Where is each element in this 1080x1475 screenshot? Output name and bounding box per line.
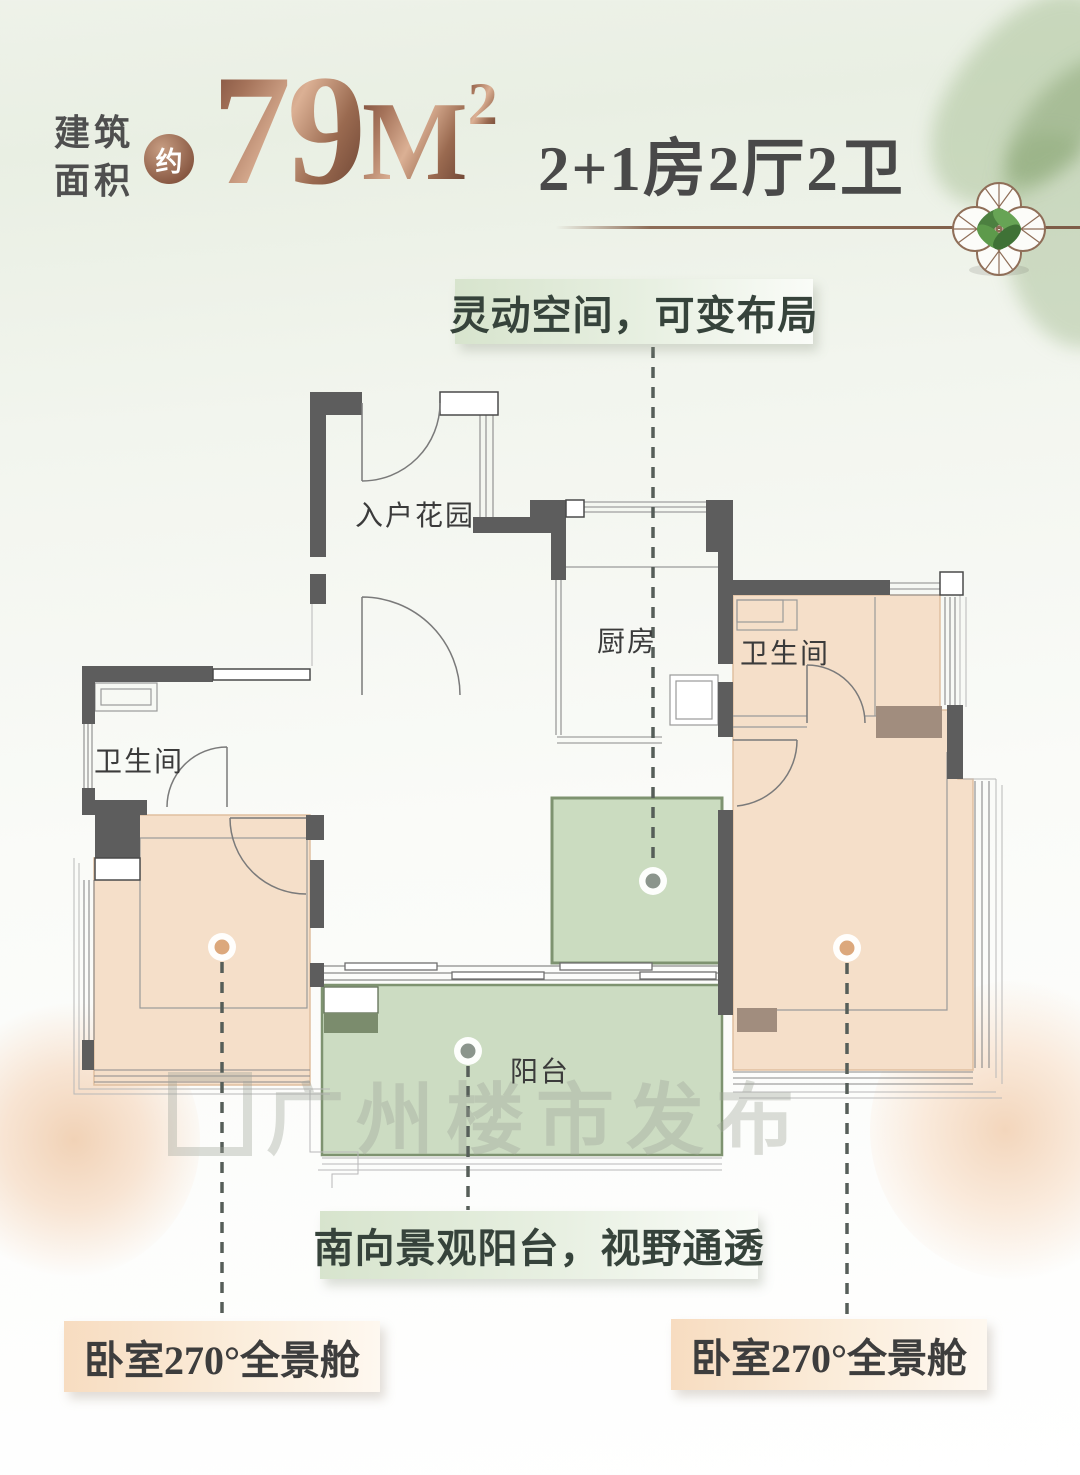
room-label-entry-garden: 入户花园	[355, 494, 475, 534]
area-label-line2: 面积	[54, 158, 134, 206]
room-label-kitchen: 厨房	[597, 620, 657, 660]
room-label-bath-left: 卫生间	[94, 740, 184, 780]
layout-description: 2+1房2厅2卫	[538, 118, 905, 209]
callout-balcony-view: 南向景观阳台，视野通透	[320, 1211, 758, 1279]
room-label-balcony: 阳台	[510, 1050, 570, 1090]
room-label-bath-right: 卫生间	[740, 632, 830, 672]
approx-badge: 约	[144, 134, 194, 184]
watermark-logo	[168, 1072, 252, 1156]
flower-ornament	[944, 174, 1054, 284]
area-unit: M	[362, 86, 466, 198]
area-number: 79	[212, 52, 362, 210]
area-label-line1: 建筑	[54, 110, 134, 158]
flex-room-fill	[552, 798, 722, 963]
area-label: 建筑 面积	[54, 110, 134, 205]
callout-flex-space: 灵动空间，可变布局	[455, 279, 813, 344]
sliding-door	[322, 963, 718, 980]
balcony-planter-green	[324, 1013, 378, 1033]
area-superscript: 2	[468, 74, 498, 134]
callout-bedroom-left: 卧室270°全景舱	[64, 1321, 380, 1392]
balcony-planter	[324, 987, 378, 1013]
callout-bedroom-right: 卧室270°全景舱	[671, 1319, 987, 1390]
watermark: 广州楼市发布	[168, 1058, 806, 1170]
area-value: 79M2	[212, 52, 498, 210]
